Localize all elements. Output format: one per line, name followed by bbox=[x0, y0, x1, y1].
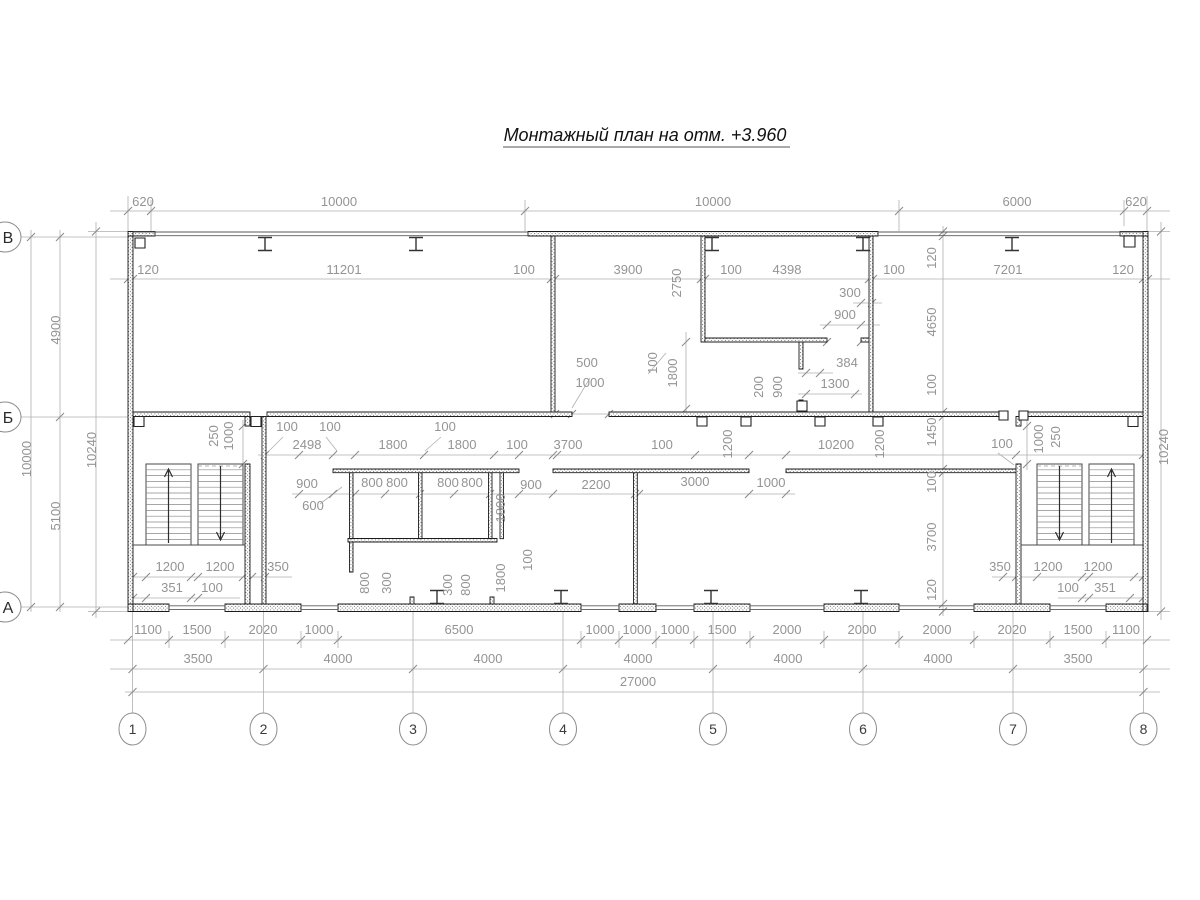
dim-label: 2020 bbox=[998, 622, 1027, 637]
dim-label: 350 bbox=[989, 559, 1011, 574]
dim-label: 100 bbox=[924, 471, 939, 493]
dim-chain-top-inner: 120 11201 100 3900 100 4398 100 7201 120 bbox=[137, 262, 1134, 277]
dim-label: 620 bbox=[132, 194, 154, 209]
dim-label: 1000 bbox=[576, 375, 605, 390]
dim-label: 1800 bbox=[665, 359, 680, 388]
dim-label: 10000 bbox=[19, 441, 34, 477]
dim-label: 120 bbox=[137, 262, 159, 277]
dim-label: 1800 bbox=[379, 437, 408, 452]
dim-label: 3500 bbox=[1064, 651, 1093, 666]
dim-label: 800 bbox=[458, 574, 473, 596]
dim-label: 100 bbox=[883, 262, 905, 277]
axis-letter: В bbox=[3, 230, 14, 247]
dim-label: 1000 bbox=[221, 422, 236, 451]
dim-label: 6500 bbox=[445, 622, 474, 637]
dim-label: 10000 bbox=[695, 194, 731, 209]
i-beam-column-icon bbox=[258, 238, 1019, 604]
dim-label: 250 bbox=[1048, 426, 1063, 448]
dim-label: 2020 bbox=[249, 622, 278, 637]
axis-number: 4 bbox=[559, 721, 567, 737]
dim-label: 2000 bbox=[773, 622, 802, 637]
dim-label: 2000 bbox=[923, 622, 952, 637]
dim-label: 1100 bbox=[134, 622, 162, 637]
axis-letter: А bbox=[3, 600, 14, 617]
dim-label: 800 bbox=[386, 475, 408, 490]
stair-treads bbox=[146, 470, 1134, 540]
dim-label: 1200 bbox=[156, 559, 185, 574]
dim-label: 4000 bbox=[924, 651, 953, 666]
dim-label: 1300 bbox=[821, 376, 850, 391]
dim-label: 800 bbox=[461, 475, 483, 490]
dim-label: 1800 bbox=[493, 564, 508, 593]
axis-bubbles-rows: В Б А bbox=[0, 222, 21, 622]
dim-label: 350 bbox=[267, 559, 289, 574]
dim-label: 100 bbox=[201, 580, 223, 595]
axis-number: 3 bbox=[409, 721, 417, 737]
dim-chain-top-outer: 620 10000 10000 6000 620 bbox=[132, 194, 1147, 209]
dim-label: 4650 bbox=[924, 308, 939, 337]
dim-label: 1000 bbox=[757, 475, 786, 490]
drawing-title: Монтажный план на отм. +3.960 bbox=[504, 125, 787, 145]
dim-label: 1200 bbox=[1084, 559, 1113, 574]
dim-label: 1800 bbox=[493, 494, 508, 523]
dim-label: 4900 bbox=[48, 316, 63, 345]
dim-label: 351 bbox=[161, 580, 183, 595]
dim-label: 3700 bbox=[554, 437, 583, 452]
dim-label: 620 bbox=[1125, 194, 1147, 209]
dim-label: 100 bbox=[513, 262, 535, 277]
dim-label: 100 bbox=[924, 374, 939, 396]
stair-flight-outline bbox=[133, 464, 1143, 545]
dim-label: 2750 bbox=[669, 269, 684, 298]
dim-label: 11201 bbox=[326, 262, 361, 277]
dim-label: 3500 bbox=[184, 651, 213, 666]
dim-label: 100 bbox=[645, 352, 660, 374]
dim-label: 500 bbox=[576, 355, 598, 370]
dim-label: 5100 bbox=[48, 502, 63, 531]
axis-number: 8 bbox=[1140, 721, 1148, 737]
dim-label: 351 bbox=[1094, 580, 1116, 595]
dim-label: 10000 bbox=[321, 194, 357, 209]
dim-label: 200 bbox=[751, 376, 766, 398]
dim-group-upper-room: 2750 500 1000 100 1800 200 900 300 900 3… bbox=[576, 269, 861, 398]
dim-label: 1500 bbox=[1064, 622, 1093, 637]
dim-label: 120 bbox=[924, 579, 939, 601]
dim-label: 1000 bbox=[661, 622, 690, 637]
stairwells bbox=[133, 464, 1143, 545]
dim-label: 300 bbox=[379, 572, 394, 594]
dim-label: 4000 bbox=[624, 651, 653, 666]
floor-plan-svg: Монтажный план на отм. +3.960 620 10000 … bbox=[0, 0, 1200, 900]
axis-letter: Б bbox=[3, 410, 14, 427]
dim-label: 900 bbox=[770, 376, 785, 398]
dim-label: 2000 bbox=[848, 622, 877, 637]
dim-label: 2498 bbox=[293, 437, 322, 452]
dim-label: 250 bbox=[206, 425, 221, 447]
dim-label: 800 bbox=[361, 475, 383, 490]
dim-label: 1000 bbox=[623, 622, 652, 637]
dim-label: 1450 bbox=[924, 418, 939, 447]
dim-label: 4398 bbox=[773, 262, 802, 277]
dim-chain-bottom-axes: 3500 4000 4000 4000 4000 4000 3500 27000 bbox=[184, 651, 1093, 689]
dim-label: 100 bbox=[651, 437, 673, 452]
dim-label: 900 bbox=[520, 477, 542, 492]
dim-label: 1100 bbox=[1112, 622, 1140, 637]
dim-label: 900 bbox=[834, 307, 856, 322]
dim-label: 100 bbox=[1057, 580, 1079, 595]
dim-label: 100 bbox=[276, 419, 298, 434]
dim-chain-lines bbox=[31, 211, 1170, 692]
axis-number: 1 bbox=[129, 721, 137, 737]
dim-label: 300 bbox=[839, 285, 861, 300]
dim-label: 100 bbox=[520, 549, 535, 571]
dim-label: 10240 bbox=[84, 432, 99, 468]
dim-label: 100 bbox=[434, 419, 456, 434]
dim-label: 600 bbox=[302, 498, 324, 513]
dim-label: 6000 bbox=[1003, 194, 1032, 209]
dim-label: 120 bbox=[1112, 262, 1134, 277]
dim-label: 7201 bbox=[994, 262, 1023, 277]
dim-label: 1000 bbox=[305, 622, 334, 637]
dim-label: 4000 bbox=[324, 651, 353, 666]
dim-label: 100 bbox=[720, 262, 742, 277]
axis-bubbles-columns: 1 2 3 4 5 6 7 8 bbox=[119, 713, 1157, 745]
dim-label: 100 bbox=[991, 436, 1013, 451]
dim-chain-bottom-openings: 1100 1500 2020 1000 6500 1000 1000 1000 … bbox=[134, 622, 1140, 637]
axis-number: 6 bbox=[859, 721, 867, 737]
dim-label: 1200 bbox=[1034, 559, 1063, 574]
dim-label: 100 bbox=[319, 419, 341, 434]
dim-label: 900 bbox=[296, 476, 318, 491]
dim-label: 4000 bbox=[474, 651, 503, 666]
drawing-sheet: Монтажный план на отм. +3.960 620 10000 … bbox=[0, 0, 1200, 900]
dim-label: 4000 bbox=[774, 651, 803, 666]
axis-number: 7 bbox=[1009, 721, 1017, 737]
dim-label: 1000 bbox=[1031, 425, 1046, 454]
dim-label: 120 bbox=[924, 247, 939, 269]
dim-label: 100 bbox=[506, 437, 528, 452]
dim-label: 800 bbox=[437, 475, 459, 490]
dim-label: 10200 bbox=[818, 437, 854, 452]
dim-label: 3900 bbox=[614, 262, 643, 277]
dim-label: 1200 bbox=[206, 559, 235, 574]
dim-label-total: 27000 bbox=[620, 674, 656, 689]
dim-label: 3700 bbox=[924, 523, 939, 552]
dim-label: 300 bbox=[440, 574, 455, 596]
axis-number: 2 bbox=[260, 721, 268, 737]
dim-label: 10240 bbox=[1156, 429, 1171, 465]
dim-label: 1500 bbox=[183, 622, 212, 637]
dim-label: 800 bbox=[357, 572, 372, 594]
dim-label: 1200 bbox=[872, 430, 887, 459]
dim-label: 1800 bbox=[448, 437, 477, 452]
dim-label: 384 bbox=[836, 355, 858, 370]
dim-group-wc-bottom: 800 300 300 800 bbox=[357, 572, 473, 596]
dim-label: 2200 bbox=[582, 477, 611, 492]
axis-number: 5 bbox=[709, 721, 717, 737]
dim-label: 1000 bbox=[586, 622, 615, 637]
dim-label: 1500 bbox=[708, 622, 737, 637]
dim-label: 3000 bbox=[681, 474, 710, 489]
dim-label: 1200 bbox=[720, 430, 735, 459]
